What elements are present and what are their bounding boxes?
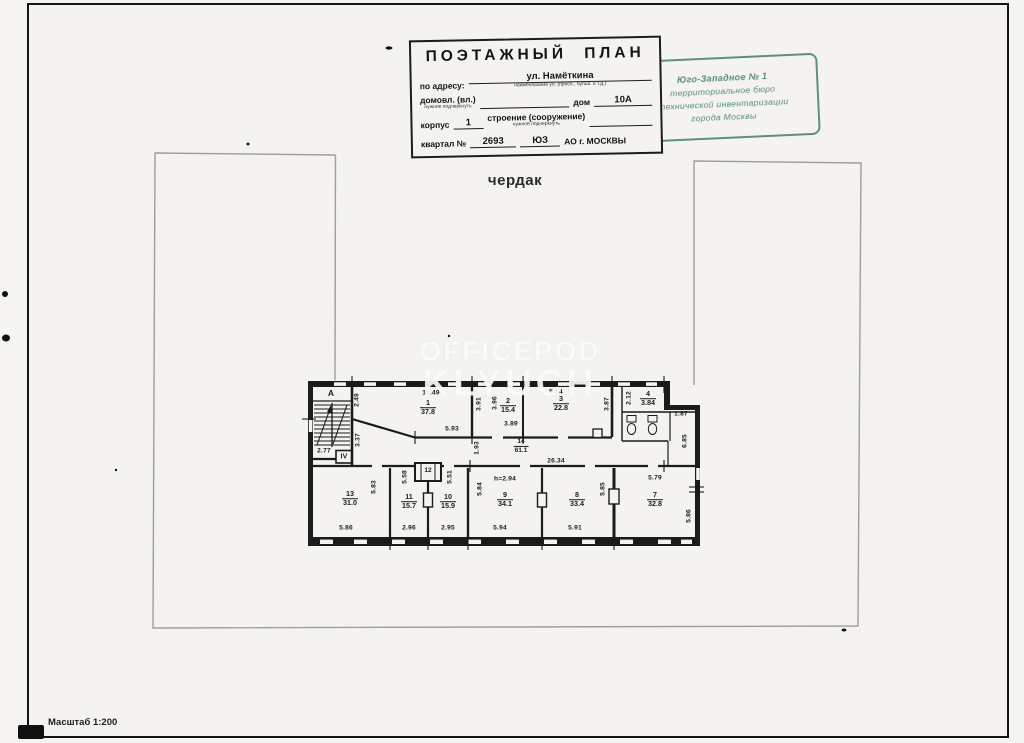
dim-r10-depth: 5.51 <box>447 470 454 484</box>
room-area: 31.0 <box>342 499 358 508</box>
dim-r13-bottom: 5.86 <box>339 525 353 532</box>
scale-label: Масштаб 1:200 <box>48 717 117 728</box>
dim-right-wall-upper: 6.85 <box>682 434 689 448</box>
dim-r10-bottom: 2.95 <box>441 525 455 532</box>
stair-section-roman: IV <box>340 454 347 461</box>
dim-r1-bottom: 5.93 <box>445 426 459 433</box>
dim-right-wall-lower: 5.86 <box>686 509 693 523</box>
stroenie-blank <box>589 114 652 126</box>
room-area: 33.4 <box>569 500 585 509</box>
scanned-floor-plan-sheet: А 2.77 IV 2.49 10.49 3.37 5.93 3.91 3.96… <box>0 0 1024 743</box>
dim-r2-bottom: 3.89 <box>504 421 518 428</box>
kvartal-value: 2693 <box>470 135 516 148</box>
room-area: 15.4 <box>500 406 516 415</box>
dim-r1-left-lower: 3.37 <box>355 433 362 447</box>
room-label-14: 14 61.1 <box>514 438 529 454</box>
dim-r1-right: 3.91 <box>476 397 483 411</box>
dim-ceiling-height: h=2.94 <box>494 476 516 483</box>
okrug-value: ЮЗ <box>520 134 560 147</box>
room-label-9: 9 34.1 <box>497 491 513 509</box>
room-label-8: 8 33.4 <box>569 491 585 509</box>
room-area: 37.8 <box>420 408 436 417</box>
room-area: 32.8 <box>647 500 663 509</box>
dim-r8-bottom: 5.91 <box>568 525 582 532</box>
address-label: по адресу: <box>420 80 465 91</box>
floor-label: чердак <box>455 172 575 189</box>
dim-r2-left: 3.96 <box>492 396 499 410</box>
room-label-11: 11 15.7 <box>401 493 417 511</box>
dim-r1-top: 10.49 <box>422 390 440 397</box>
room-label-3: 3 22.8 <box>553 395 569 413</box>
ownership-blank <box>480 96 570 109</box>
dim-stair-width: 2.77 <box>317 448 331 455</box>
dim-corridor-length: 26.34 <box>547 458 565 465</box>
korpus-value: 1 <box>453 117 483 130</box>
room-number: 7 <box>653 491 657 499</box>
dim-r9-left: 5.84 <box>477 482 484 496</box>
room-area: 22.8 <box>553 404 569 413</box>
room-label-1: 1 37.8 <box>420 399 436 417</box>
city-value: АО г. МОСКВЫ <box>564 135 626 146</box>
room-label-13: 13 31.0 <box>342 490 358 508</box>
room-area: 34.1 <box>497 500 513 509</box>
room-number: 1 <box>426 399 430 407</box>
dim-r11-bottom: 2.96 <box>402 525 416 532</box>
room-number: 9 <box>503 491 507 499</box>
stroenie-caption: нужное подчеркнуть <box>513 122 560 128</box>
room-number: 4 <box>646 390 650 398</box>
address-caption: наименование ул. (просп., бульв. и т.д.) <box>514 82 606 89</box>
house-value: 10А <box>594 94 652 107</box>
dim-r13-depth: 5.83 <box>371 480 378 494</box>
room-label-4: 4 3.84 <box>640 390 656 408</box>
ownership-caption: нужное подчеркнуть <box>424 104 471 110</box>
room-area: 61.1 <box>514 446 529 455</box>
room-number: 2 <box>506 397 510 405</box>
room-number: 11 <box>405 493 413 501</box>
room-number: 8 <box>575 491 579 499</box>
room-area: 3.84 <box>640 399 656 408</box>
dim-r11-depth: 5.58 <box>402 470 409 484</box>
dim-r7-top: 5.79 <box>648 475 662 482</box>
room-label-2: 2 15.4 <box>500 397 516 415</box>
title-block: ПОЭТАЖНЫЙ ПЛАН по адресу: ул. Намёткина … <box>409 36 663 158</box>
house-label: дом <box>573 97 590 107</box>
dim-r8-right: 5.85 <box>600 482 607 496</box>
room-number: 3 <box>559 395 563 403</box>
plan-title: ПОЭТАЖНЫЙ ПЛАН <box>419 44 651 66</box>
room-label-7: 7 32.8 <box>647 491 663 509</box>
dim-r4-right: 1.87 <box>674 411 688 418</box>
room-number: 13 <box>346 490 354 498</box>
room-number: 14 <box>517 438 524 446</box>
room-area: 15.7 <box>401 502 417 511</box>
room-label-12: 12 <box>424 467 431 475</box>
dim-r9-bottom: 5.94 <box>493 525 507 532</box>
stamp-line-4: города Москвы <box>691 110 757 126</box>
stair-letter: А <box>328 388 334 398</box>
room-number: 12 <box>424 467 431 475</box>
dim-corridor-width: 1.93 <box>474 441 481 455</box>
room-number: 10 <box>444 493 452 501</box>
kvartal-label: квартал № <box>421 138 466 149</box>
room-label-10: 10 15.9 <box>440 493 456 511</box>
room-area: 15.9 <box>440 502 456 511</box>
dim-r3-right: 3.87 <box>604 397 611 411</box>
dim-r1-left-upper: 2.49 <box>354 393 361 407</box>
korpus-label: корпус <box>420 119 449 130</box>
dim-r4-left: 2.12 <box>626 391 633 405</box>
